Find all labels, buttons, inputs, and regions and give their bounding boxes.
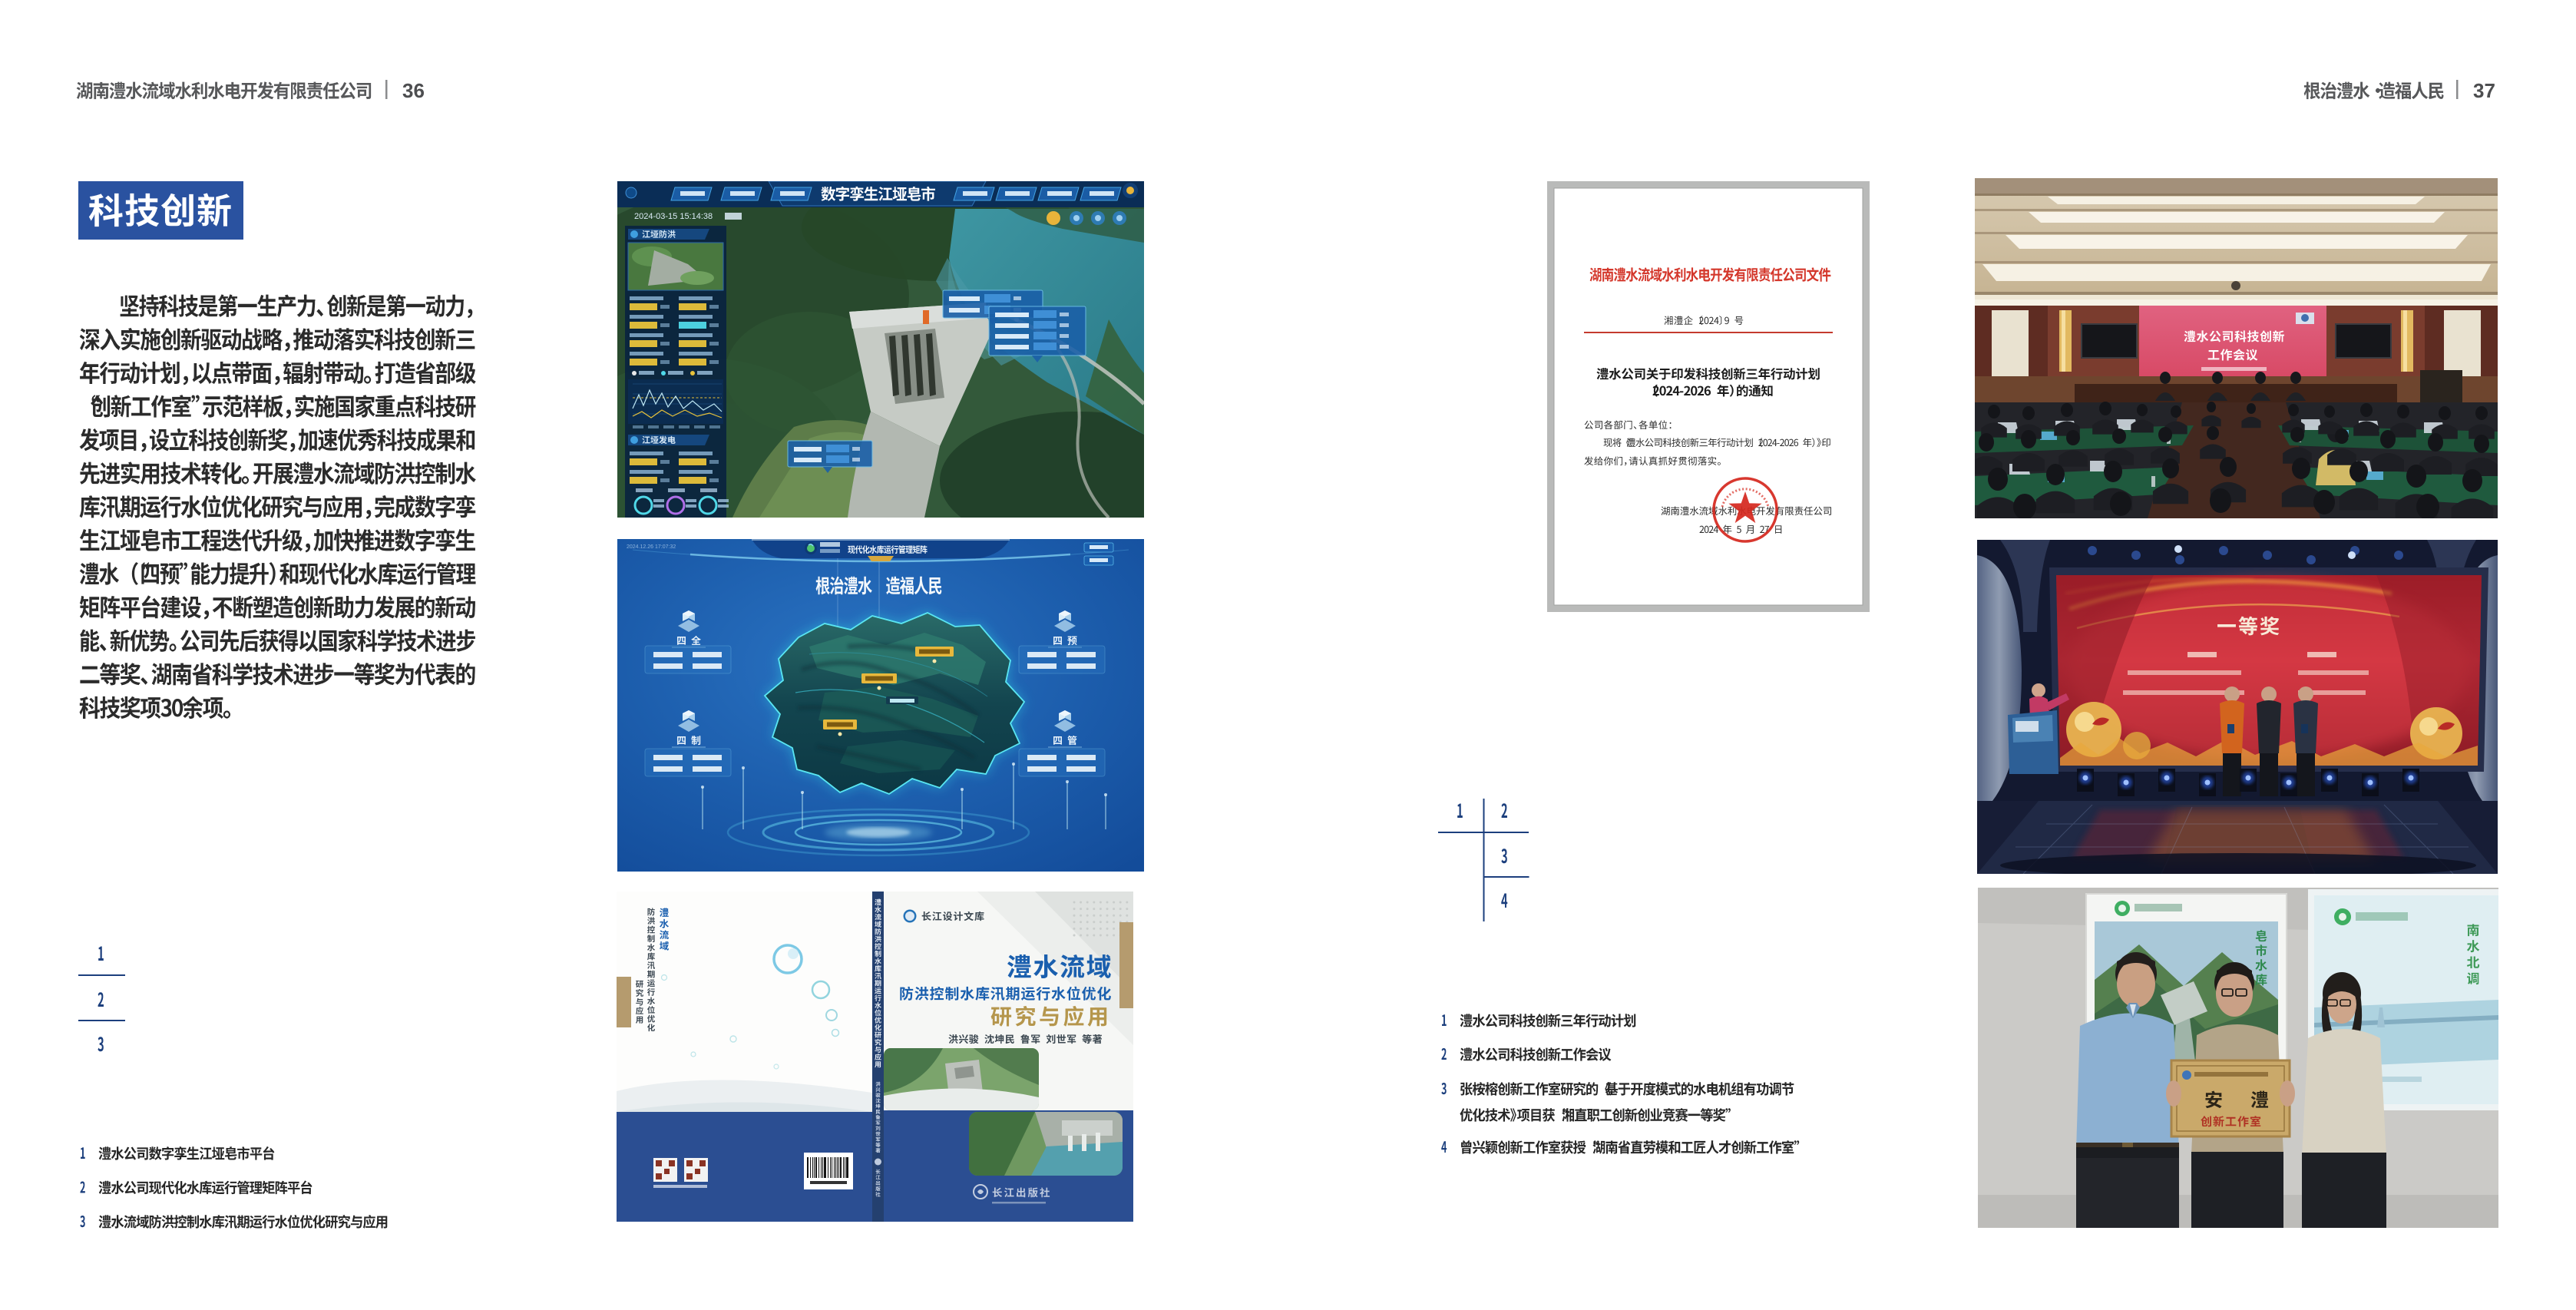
svg-text:2024-03-15 15:14:38: 2024-03-15 15:14:38 [634, 212, 713, 221]
svg-text:37: 37 [2473, 79, 2495, 102]
svg-text:2024.12.26 17:07:32: 2024.12.26 17:07:32 [627, 544, 676, 550]
svg-text:36: 36 [402, 79, 425, 102]
